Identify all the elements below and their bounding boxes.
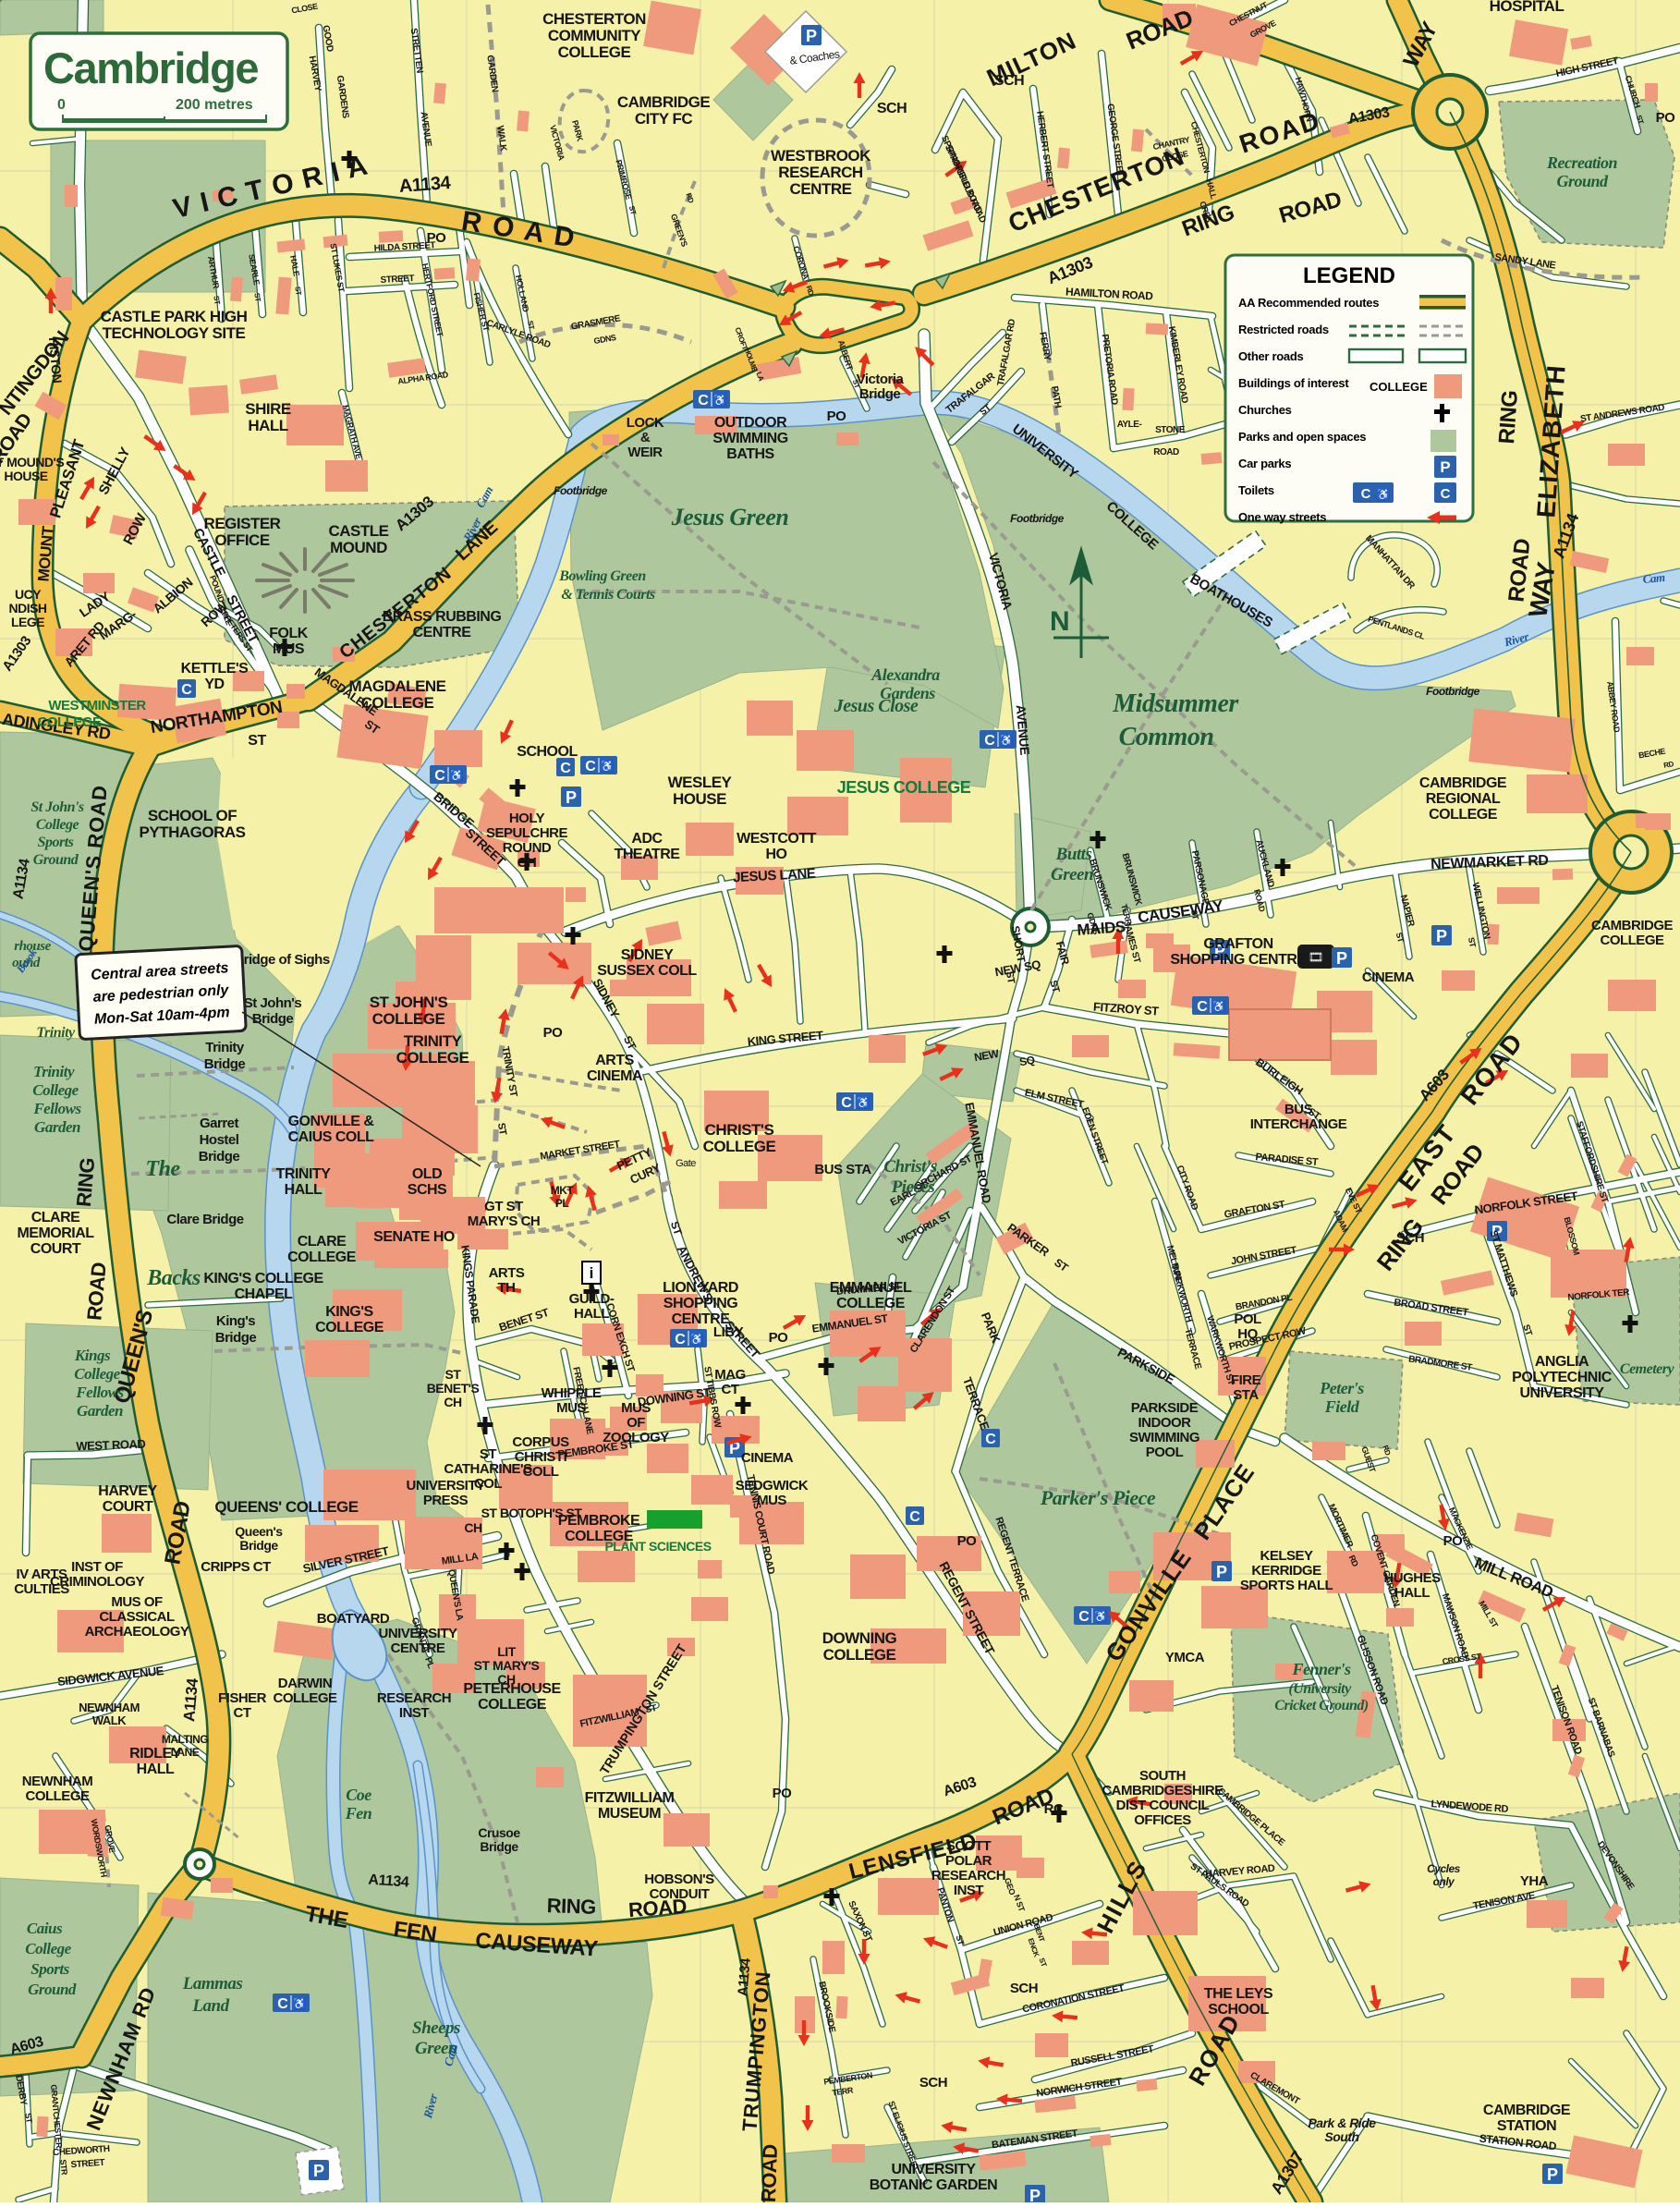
svg-text:MAGDALENE: MAGDALENE [348, 677, 445, 695]
svg-text:Footbridge: Footbridge [1010, 512, 1064, 525]
svg-text:CT: CT [234, 1705, 251, 1721]
svg-text:P: P [1216, 1563, 1227, 1581]
svg-text:KELSEY: KELSEY [1260, 1548, 1313, 1564]
svg-text:CAMBRIDGE: CAMBRIDGE [1483, 2103, 1571, 2118]
svg-text:KING'S: KING'S [325, 1304, 373, 1320]
svg-text:COLLEGE: COLLEGE [287, 1250, 357, 1265]
svg-text:BATHS: BATHS [726, 446, 774, 462]
svg-text:ST: ST [445, 1367, 462, 1382]
svg-text:STR: STR [58, 2159, 68, 2176]
svg-text:SCHS: SCHS [408, 1182, 447, 1198]
svg-text:THEATRE: THEATRE [615, 847, 681, 862]
svg-text:Cam: Cam [1642, 570, 1665, 586]
svg-text:OLD: OLD [412, 1166, 442, 1182]
svg-text:SIDNEY: SIDNEY [621, 947, 674, 963]
svg-text:CINEMA: CINEMA [587, 1068, 643, 1084]
svg-text:Bridge: Bridge [199, 1149, 240, 1164]
svg-text:LANE: LANE [171, 1746, 200, 1759]
svg-text:CAMBRIDGE: CAMBRIDGE [1591, 918, 1673, 933]
svg-text:ST MOUND'S: ST MOUND'S [0, 455, 64, 469]
svg-text:MUS: MUS [621, 1400, 651, 1416]
svg-text:SOUTH: SOUTH [1139, 1768, 1186, 1784]
svg-text:EMMANUEL: EMMANUEL [830, 1280, 912, 1296]
svg-text:Christ's: Christ's [883, 1157, 936, 1177]
svg-text:YMCA: YMCA [1165, 1650, 1205, 1665]
svg-text:PARKSIDE: PARKSIDE [1131, 1400, 1199, 1416]
svg-text:BUS: BUS [1284, 1102, 1313, 1117]
svg-text:Alexandra: Alexandra [870, 665, 940, 684]
svg-text:REGISTER: REGISTER [204, 515, 281, 532]
svg-text:POOL: POOL [1146, 1445, 1184, 1460]
svg-text:Jesus Green: Jesus Green [671, 504, 789, 530]
svg-text:GONVILLE &: GONVILLE & [288, 1114, 375, 1129]
svg-text:UNIVERSITY: UNIVERSITY [1519, 1385, 1604, 1401]
svg-text:COLLEGE: COLLEGE [372, 1010, 445, 1028]
svg-text:COLLEGE: COLLEGE [25, 1788, 89, 1804]
svg-text:College: College [74, 1365, 120, 1383]
svg-text:Lammas: Lammas [182, 1974, 243, 1994]
svg-text:P: P [1440, 458, 1450, 476]
svg-text:SHOPPING CENTRE: SHOPPING CENTRE [1170, 952, 1307, 968]
svg-text:Footbridge: Footbridge [1426, 685, 1479, 698]
svg-text:Kings: Kings [74, 1347, 111, 1364]
svg-text:Common: Common [1119, 723, 1214, 751]
svg-text:C: C [1361, 486, 1371, 502]
svg-text:P: P [1336, 949, 1347, 968]
svg-text:HQ: HQ [1237, 1326, 1258, 1342]
svg-text:COMMUNITY: COMMUNITY [548, 27, 641, 44]
svg-text:P: P [566, 788, 577, 807]
svg-text:C: C [841, 1095, 852, 1111]
svg-text:C: C [585, 759, 596, 774]
svg-text:CH: CH [517, 855, 537, 871]
svg-text:PO: PO [1656, 110, 1676, 126]
svg-text:NDISH: NDISH [8, 601, 46, 616]
svg-text:Butts: Butts [1055, 845, 1092, 864]
svg-text:INST: INST [954, 1883, 984, 1898]
svg-text:TECHNOLOGY SITE: TECHNOLOGY SITE [103, 324, 246, 342]
svg-text:BUS STA: BUS STA [814, 1162, 871, 1177]
svg-text:Fellows: Fellows [32, 1100, 81, 1117]
svg-text:Caius: Caius [27, 1920, 63, 1937]
svg-text:REGIONAL: REGIONAL [1426, 791, 1501, 807]
svg-text:CHESTERTON: CHESTERTON [542, 10, 646, 28]
svg-text:Buildings of interest: Buildings of interest [1238, 376, 1349, 390]
svg-text:PO: PO [1443, 1533, 1464, 1549]
svg-text:Bridge of Sighs: Bridge of Sighs [234, 952, 329, 968]
svg-text:OF: OF [627, 1415, 645, 1431]
svg-text:P: P [1547, 2165, 1558, 2184]
svg-text:CAIUS COLL: CAIUS COLL [288, 1129, 375, 1145]
svg-text:SCH: SCH [919, 2075, 947, 2091]
svg-text:UCY: UCY [15, 587, 42, 602]
svg-text:STONE: STONE [1155, 425, 1186, 435]
svg-text:(University: (University [1288, 1681, 1352, 1697]
svg-text:LEGEND: LEGEND [1303, 263, 1395, 288]
svg-text:HUGHES: HUGHES [1383, 1570, 1441, 1586]
svg-text:HARVEY: HARVEY [98, 1483, 157, 1499]
svg-text:& Tennis Courts: & Tennis Courts [561, 587, 655, 603]
svg-text:TRINITY: TRINITY [276, 1166, 332, 1182]
svg-text:BENET'S: BENET'S [427, 1381, 480, 1396]
svg-text:SCOTT: SCOTT [946, 1838, 992, 1854]
svg-text:MUS OF: MUS OF [111, 1594, 163, 1610]
svg-text:OFFICES: OFFICES [1134, 1812, 1191, 1828]
svg-text:RING: RING [72, 1157, 100, 1208]
svg-text:Gardens: Gardens [880, 684, 935, 702]
svg-text:ROAD: ROAD [1153, 447, 1179, 457]
svg-text:♿: ♿ [1000, 734, 1014, 747]
svg-text:HOLY: HOLY [509, 811, 545, 826]
svg-text:BOTANIC GARDEN: BOTANIC GARDEN [870, 2177, 997, 2193]
svg-text:CORPUS: CORPUS [512, 1434, 569, 1450]
svg-text:CONDUIT: CONDUIT [650, 1886, 710, 1902]
svg-text:SCH: SCH [1396, 1230, 1424, 1246]
svg-text:Pieces: Pieces [891, 1177, 935, 1197]
svg-text:P: P [806, 27, 817, 45]
svg-text:St John's: St John's [244, 995, 302, 1011]
svg-text:FISHER: FISHER [218, 1690, 267, 1706]
svg-text:P: P [1436, 927, 1447, 945]
svg-text:Ground: Ground [1556, 172, 1609, 190]
svg-text:NEWNHAM: NEWNHAM [79, 1701, 140, 1714]
svg-text:SCHOOL: SCHOOL [517, 744, 578, 760]
svg-text:Other roads: Other roads [1238, 349, 1303, 363]
svg-text:CASTLE PARK HIGH: CASTLE PARK HIGH [101, 308, 248, 325]
svg-text:MOUND: MOUND [330, 539, 387, 556]
svg-text:SEPULCHRE: SEPULCHRE [486, 825, 568, 841]
svg-text:COLLEGE: COLLEGE [37, 714, 101, 730]
svg-text:FIRE: FIRE [1231, 1372, 1261, 1388]
svg-text:CENTRE: CENTRE [391, 1640, 445, 1656]
svg-text:Garden: Garden [34, 1118, 80, 1136]
svg-text:MAG: MAG [714, 1367, 746, 1383]
svg-text:TRINITY: TRINITY [404, 1032, 463, 1050]
svg-text:SCH: SCH [1010, 1981, 1038, 1996]
svg-text:Bridge: Bridge [204, 1056, 246, 1072]
svg-text:ST: ST [248, 733, 266, 749]
svg-text:LIBY: LIBY [713, 1324, 744, 1340]
svg-text:A1134: A1134 [368, 1872, 409, 1891]
svg-text:COURT: COURT [103, 1499, 153, 1515]
svg-text:ST MARY'S: ST MARY'S [474, 1658, 540, 1673]
svg-text:COLLEGE: COLLEGE [1370, 380, 1428, 394]
svg-text:FITZWILLIAM: FITZWILLIAM [585, 1790, 675, 1806]
svg-text:COLLEGE: COLLEGE [396, 1049, 469, 1067]
svg-text:AA Recommended routes: AA Recommended routes [1238, 296, 1379, 310]
svg-text:Peter's: Peter's [1319, 1379, 1364, 1397]
svg-text:One way streets: One way streets [1238, 510, 1326, 524]
svg-text:COURT: COURT [30, 1241, 81, 1257]
svg-text:RESEARCH: RESEARCH [778, 164, 863, 181]
svg-text:C: C [277, 1996, 288, 2012]
svg-text:C: C [1197, 999, 1208, 1015]
svg-text:POLYTECHNIC: POLYTECHNIC [1512, 1370, 1613, 1385]
svg-text:Green: Green [1051, 865, 1093, 884]
svg-text:FOLK: FOLK [269, 626, 308, 641]
svg-text:THE LEYS: THE LEYS [1204, 1986, 1273, 2002]
svg-text:HALL: HALL [137, 1762, 175, 1777]
svg-text:IV ARTS: IV ARTS [16, 1567, 67, 1582]
svg-text:Sports: Sports [30, 1960, 69, 1978]
svg-text:C: C [1441, 486, 1451, 502]
svg-text:♿: ♿ [450, 769, 464, 782]
svg-text:Toilets: Toilets [1238, 483, 1274, 497]
svg-text:Fen: Fen [345, 1804, 372, 1823]
svg-text:A1134: A1134 [398, 173, 452, 197]
svg-text:Churches: Churches [1238, 403, 1292, 417]
svg-text:Cemetery: Cemetery [1620, 1361, 1675, 1377]
svg-text:&: & [640, 430, 651, 445]
svg-text:PO: PO [827, 408, 847, 424]
svg-text:♿: ♿ [713, 394, 727, 407]
svg-text:COLLEGE: COLLEGE [1600, 933, 1663, 948]
svg-text:College: College [32, 1081, 79, 1099]
svg-text:Coe: Coe [346, 1786, 371, 1804]
svg-text:C: C [675, 1332, 686, 1347]
svg-text:SHIRE: SHIRE [245, 400, 291, 418]
svg-text:CATHARINE'S: CATHARINE'S [444, 1461, 532, 1477]
svg-text:UNIVERSITY: UNIVERSITY [406, 1478, 485, 1494]
svg-text:South: South [1324, 2129, 1358, 2144]
svg-text:CH: CH [464, 1520, 482, 1535]
svg-text:BOATYARD: BOATYARD [317, 1611, 390, 1627]
svg-text:QUEENS' COLLEGE: QUEENS' COLLEGE [214, 1498, 358, 1516]
svg-text:CENTRE: CENTRE [413, 625, 472, 640]
svg-text:SPORTS HALL: SPORTS HALL [1240, 1578, 1333, 1593]
svg-text:Fenner's: Fenner's [1291, 1660, 1351, 1678]
svg-text:ZOOLOGY: ZOOLOGY [603, 1430, 669, 1445]
svg-text:Ground: Ground [28, 1981, 77, 1998]
svg-text:WESTBROOK: WESTBROOK [771, 147, 871, 165]
svg-text:SWIMMING: SWIMMING [1129, 1430, 1199, 1445]
svg-text:Sheeps: Sheeps [412, 2018, 460, 2038]
svg-text:Hostel: Hostel [200, 1132, 239, 1148]
svg-text:DIST COUNCIL: DIST COUNCIL [1116, 1798, 1210, 1813]
svg-text:Car parks: Car parks [1238, 457, 1291, 470]
svg-text:UNIVERSITY: UNIVERSITY [891, 2162, 976, 2177]
svg-text:ADC: ADC [631, 831, 663, 847]
svg-text:BRASS RUBBING: BRASS RUBBING [383, 609, 502, 625]
svg-text:CLARE: CLARE [298, 1234, 347, 1250]
svg-text:CAMBRIDGE: CAMBRIDGE [617, 93, 710, 111]
svg-text:COLLEGE: COLLEGE [315, 1320, 384, 1335]
svg-text:ROAD: ROAD [757, 2144, 782, 2202]
svg-text:KETTLE'S: KETTLE'S [181, 661, 250, 677]
svg-text:MUS: MUS [273, 641, 305, 657]
svg-text:LEGE: LEGE [11, 615, 44, 629]
svg-text:SEDGWICK: SEDGWICK [736, 1478, 809, 1494]
svg-text:Victoria: Victoria [857, 372, 905, 387]
svg-text:ST JOHN'S: ST JOHN'S [370, 994, 448, 1011]
svg-text:MAIDS: MAIDS [1077, 918, 1126, 939]
svg-text:COLLEGE: COLLEGE [836, 1296, 906, 1311]
svg-text:Trinity: Trinity [33, 1063, 75, 1080]
svg-text:♿: ♿ [690, 1333, 704, 1346]
svg-text:PO: PO [427, 230, 447, 246]
svg-text:OUTDOOR: OUTDOOR [714, 415, 787, 431]
svg-text:PRESS: PRESS [423, 1493, 469, 1508]
svg-text:WHIPPLE: WHIPPLE [542, 1385, 602, 1401]
svg-text:HOUSE: HOUSE [4, 469, 47, 483]
svg-text:CHAPEL: CHAPEL [235, 1286, 294, 1302]
svg-text:PETERHOUSE: PETERHOUSE [463, 1681, 561, 1697]
svg-text:PO: PO [769, 1330, 789, 1346]
svg-text:CLASSICAL: CLASSICAL [99, 1609, 175, 1625]
svg-text:C: C [985, 1432, 996, 1447]
svg-text:CASTLE: CASTLE [329, 522, 389, 540]
svg-text:King's: King's [216, 1313, 255, 1329]
svg-text:DARWIN: DARWIN [278, 1676, 332, 1691]
svg-text:SWIMMING: SWIMMING [712, 431, 787, 446]
svg-text:PEMBROKE: PEMBROKE [558, 1513, 640, 1529]
svg-text:WEST ROAD: WEST ROAD [76, 1437, 146, 1454]
svg-text:RESEARCH: RESEARCH [931, 1868, 1005, 1884]
svg-text:CRIPPS CT: CRIPPS CT [201, 1559, 271, 1575]
svg-text:COLLEGE: COLLEGE [273, 1690, 336, 1706]
svg-text:P: P [313, 2162, 324, 2180]
svg-text:RC: RC [1044, 1801, 1064, 1817]
svg-text:Ground: Ground [33, 852, 79, 868]
svg-text:DOWNING: DOWNING [822, 1629, 897, 1647]
svg-text:LOCK: LOCK [627, 415, 664, 431]
svg-text:RESEARCH: RESEARCH [377, 1690, 451, 1706]
svg-text:Land: Land [191, 1996, 229, 2016]
svg-text:Bridge: Bridge [859, 386, 901, 402]
svg-text:only: only [1433, 1875, 1455, 1888]
svg-text:CH: CH [444, 1395, 462, 1409]
svg-text:RING: RING [546, 1894, 596, 1919]
svg-text:HOSPITAL: HOSPITAL [1490, 0, 1564, 15]
svg-text:UNIVERSITY: UNIVERSITY [378, 1626, 457, 1641]
svg-text:♿: ♿ [293, 1997, 307, 2010]
svg-text:Midsummer: Midsummer [1112, 689, 1239, 718]
svg-text:Sports: Sports [38, 835, 74, 850]
svg-text:GRAFTON: GRAFTON [1203, 936, 1272, 952]
svg-text:200 metres: 200 metres [176, 97, 253, 113]
svg-text:Bowling Green: Bowling Green [558, 568, 646, 584]
svg-text:KING'S COLLEGE: KING'S COLLEGE [203, 1271, 323, 1286]
svg-text:Queen's: Queen's [235, 1524, 283, 1539]
svg-text:WALK: WALK [92, 1713, 127, 1727]
svg-text:HALL: HALL [574, 1306, 609, 1322]
svg-text:Backs: Backs [146, 1266, 201, 1290]
svg-text:YHA: YHA [1520, 1873, 1549, 1889]
svg-text:MKT: MKT [551, 1184, 575, 1197]
svg-text:SUSSEX COLL: SUSSEX COLL [597, 963, 697, 979]
svg-text:CINEMA: CINEMA [1362, 969, 1415, 985]
svg-text:COLLEGE: COLLEGE [1429, 807, 1498, 823]
svg-text:MUSEUM: MUSEUM [598, 1806, 661, 1822]
svg-text:SCHOOL OF: SCHOOL OF [148, 807, 237, 824]
svg-text:WESTMINSTER: WESTMINSTER [48, 698, 146, 713]
svg-text:PYTHAGORAS: PYTHAGORAS [140, 823, 246, 841]
svg-text:WESLEY: WESLEY [668, 774, 733, 791]
svg-text:SCHOOL: SCHOOL [1208, 2002, 1269, 2018]
svg-text:Garret: Garret [200, 1116, 239, 1131]
svg-text:CENTRE: CENTRE [790, 180, 852, 198]
svg-text:Park & Ride: Park & Ride [1308, 2116, 1376, 2130]
svg-text:HOUSE: HOUSE [673, 790, 726, 808]
svg-text:HALL: HALL [285, 1182, 323, 1198]
svg-text:Trinity: Trinity [36, 1025, 76, 1041]
svg-text:SENATE HO: SENATE HO [373, 1229, 455, 1245]
svg-text:SHOPPING: SHOPPING [663, 1296, 738, 1311]
svg-text:GUILD-: GUILD- [569, 1291, 615, 1307]
svg-text:COLLEGE: COLLEGE [703, 1138, 776, 1155]
svg-text:MUS: MUS [556, 1400, 586, 1416]
svg-text:CT: CT [722, 1382, 739, 1397]
svg-text:Parker's Piece: Parker's Piece [1040, 1486, 1156, 1509]
svg-text:MUS: MUS [757, 1493, 786, 1508]
svg-text:SCH: SCH [994, 73, 1024, 89]
svg-text:INTERCHANGE: INTERCHANGE [1250, 1116, 1347, 1132]
svg-text:C: C [909, 1509, 920, 1525]
svg-text:Field: Field [1324, 1397, 1360, 1416]
svg-text:WESTCOTT: WESTCOTT [737, 831, 816, 847]
svg-text:ARTS: ARTS [595, 1053, 634, 1068]
svg-text:CULTIES: CULTIES [14, 1581, 69, 1597]
svg-text:ST: ST [480, 1446, 497, 1462]
svg-text:ANGLIA: ANGLIA [1535, 1354, 1589, 1370]
svg-text:♿: ♿ [857, 1096, 870, 1109]
svg-text:WEIR: WEIR [627, 445, 663, 460]
svg-text:C: C [560, 761, 571, 776]
svg-text:PO: PO [773, 1786, 793, 1801]
svg-text:♿: ♿ [601, 760, 615, 773]
svg-text:INST: INST [399, 1705, 430, 1721]
svg-text:College: College [36, 817, 79, 833]
svg-text:NEWNHAM: NEWNHAM [22, 1774, 93, 1789]
svg-text:Recreation: Recreation [1546, 153, 1617, 172]
svg-text:RING: RING [1494, 390, 1523, 445]
svg-text:KERRIDGE: KERRIDGE [1251, 1563, 1321, 1579]
svg-text:MALTING: MALTING [162, 1733, 208, 1746]
svg-text:PLANT SCIENCES: PLANT SCIENCES [604, 1539, 711, 1554]
svg-text:COLLEGE: COLLEGE [478, 1697, 547, 1713]
svg-text:Clare Bridge: Clare Bridge [166, 1212, 243, 1227]
svg-text:ARTS: ARTS [489, 1265, 525, 1281]
svg-text:GT ST: GT ST [484, 1199, 523, 1214]
svg-text:Bridge: Bridge [480, 1839, 518, 1854]
svg-text:MARY'S CH: MARY'S CH [468, 1213, 541, 1229]
svg-text:St John's: St John's [30, 799, 84, 815]
svg-text:0: 0 [57, 97, 66, 113]
svg-text:SCH: SCH [877, 101, 907, 116]
svg-text:C: C [1078, 1609, 1090, 1625]
svg-text:Garden: Garden [77, 1402, 123, 1420]
svg-text:YD: YD [204, 677, 224, 692]
svg-text:CINEMA: CINEMA [741, 1450, 794, 1466]
svg-text:PO: PO [957, 1533, 978, 1549]
svg-text:TH: TH [498, 1280, 516, 1296]
svg-text:Cricket Ground): Cricket Ground) [1274, 1698, 1369, 1713]
svg-text:Footbridge: Footbridge [554, 484, 607, 497]
svg-text:CLARE: CLARE [31, 1210, 80, 1225]
svg-text:♿: ♿ [1094, 1610, 1108, 1623]
svg-text:Parks and open spaces: Parks and open spaces [1238, 430, 1366, 444]
svg-text:Bridge: Bridge [239, 1538, 278, 1553]
svg-text:COLLEGE: COLLEGE [361, 694, 434, 712]
svg-text:HALL: HALL [248, 417, 287, 434]
svg-text:STREET: STREET [380, 274, 414, 286]
svg-text:PL: PL [555, 1197, 569, 1210]
svg-text:STATION: STATION [1497, 2118, 1556, 2134]
svg-text:MEMORIAL: MEMORIAL [17, 1225, 94, 1241]
svg-text:CITY FC: CITY FC [635, 110, 693, 128]
svg-text:CAMBRIDGESHIRE: CAMBRIDGESHIRE [1102, 1783, 1223, 1799]
svg-text:Bridge: Bridge [215, 1330, 257, 1346]
